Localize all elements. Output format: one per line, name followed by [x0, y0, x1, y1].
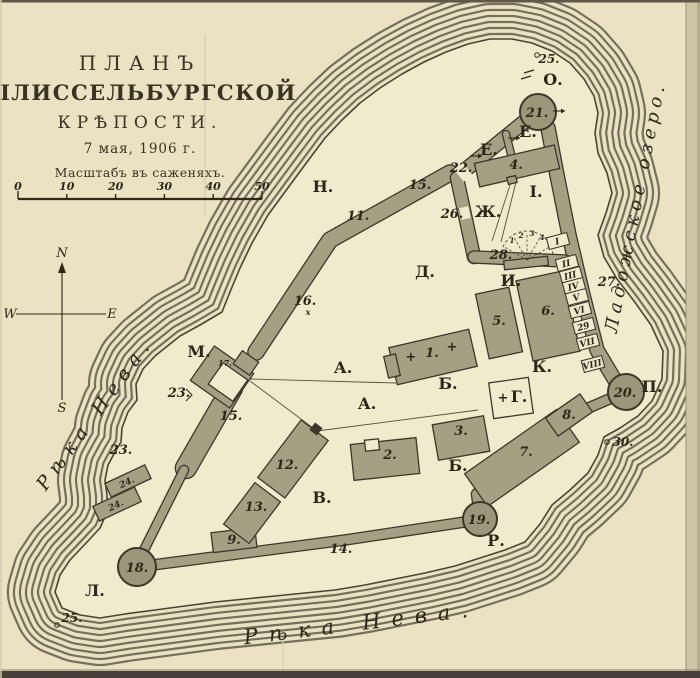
tower-number: 21. — [525, 106, 549, 121]
map-date: 7 мая, 1906 г. — [84, 141, 197, 157]
area-letter: Д. — [415, 262, 435, 281]
tower-number: 20. — [613, 386, 637, 401]
compass-letter-E: E — [106, 307, 117, 322]
compass-letter-N: N — [55, 246, 68, 261]
area-letter: Н. — [313, 177, 334, 196]
compass-letter-W: W — [3, 307, 18, 322]
scale-tick-label: 50 — [254, 180, 270, 193]
area-letter: Л. — [85, 581, 105, 600]
building-number: 7. — [519, 445, 533, 460]
building-4-annex — [507, 176, 517, 185]
area-letter: Е. — [480, 140, 498, 159]
building-number: 15. — [409, 178, 432, 193]
scanned-map-page: 1234 IIIIIIIVVVI29VIIVIII x ПЛАНЪ ШЛИССЕ… — [0, 0, 700, 678]
scale-tick-label: 40 — [206, 180, 222, 193]
area-letter: Е. — [519, 122, 537, 141]
area-letter: М. — [187, 342, 210, 361]
area-letter: О. — [543, 70, 563, 89]
tower-number: 19. — [468, 513, 491, 528]
building-number: 14. — [330, 542, 353, 557]
scale-tick-label: 20 — [107, 180, 124, 193]
building-number: 9. — [227, 533, 241, 548]
area-letter: И. — [501, 271, 522, 290]
building-number: 8. — [562, 408, 576, 423]
building-number: 23. — [109, 443, 133, 458]
point-number: 30. — [613, 435, 634, 449]
area-letter: Б. — [448, 456, 467, 475]
building-number: 22. — [449, 161, 473, 176]
cross-symbol: + — [406, 350, 417, 365]
point-number: 25. — [61, 611, 83, 625]
area-letter: Ж. — [475, 202, 502, 221]
building-2-notch — [364, 439, 379, 451]
building-number: 13. — [245, 500, 268, 515]
scale-tick-label: 30 — [157, 180, 173, 193]
tower-number: 18. — [126, 561, 149, 576]
building-number: 2. — [382, 448, 397, 463]
building-number: 16. — [294, 294, 317, 309]
building-number: 5. — [492, 314, 506, 329]
building-number: 26. — [440, 207, 464, 222]
building-number: 12. — [276, 458, 299, 473]
scale-tick-label: 10 — [59, 180, 75, 193]
area-letter: П. — [642, 377, 663, 396]
area-letter: Р. — [487, 531, 505, 550]
building-number: 28. — [489, 248, 513, 263]
area-letter: А. — [358, 394, 377, 413]
compass-letter-S: S — [58, 401, 67, 416]
area-letter: А. — [334, 358, 353, 377]
area-letter: Г. — [511, 387, 528, 406]
building-number: 1. — [425, 346, 439, 361]
fan-number: 3 — [530, 229, 535, 238]
map-title-kreposti: КРѢПОСТИ. — [58, 113, 223, 133]
fan-number: 2 — [518, 231, 524, 240]
cross-symbol: + — [498, 391, 509, 406]
scale-caption: Масштабъ въ саженяхъ. — [55, 165, 226, 180]
area-letter: В. — [312, 488, 331, 507]
building-number: 23. — [167, 386, 191, 401]
building-number: 17. — [218, 358, 232, 368]
fan-number: 1 — [510, 236, 515, 245]
fan-number: 4 — [540, 233, 545, 242]
cross-symbol: + — [447, 340, 458, 355]
fortress-map: 1234 IIIIIIIVVVI29VIIVIII x ПЛАНЪ ШЛИССЕ… — [0, 0, 700, 678]
building-number: 11. — [347, 209, 370, 224]
building-number: 3. — [454, 424, 468, 439]
area-letter: І. — [529, 182, 542, 201]
area-letter: Б. — [438, 374, 457, 393]
map-title-plan: ПЛАНЪ — [79, 51, 202, 75]
point-number: 25. — [538, 52, 560, 66]
building-number: 4. — [509, 158, 523, 173]
building-number: 6. — [541, 304, 555, 319]
building-number: 15. — [220, 409, 243, 424]
area-letter: К. — [532, 357, 552, 376]
map-title-fortress: ШЛИССЕЛЬБУРГСКОЙ — [0, 79, 297, 105]
scale-tick-label: 0 — [14, 180, 22, 193]
